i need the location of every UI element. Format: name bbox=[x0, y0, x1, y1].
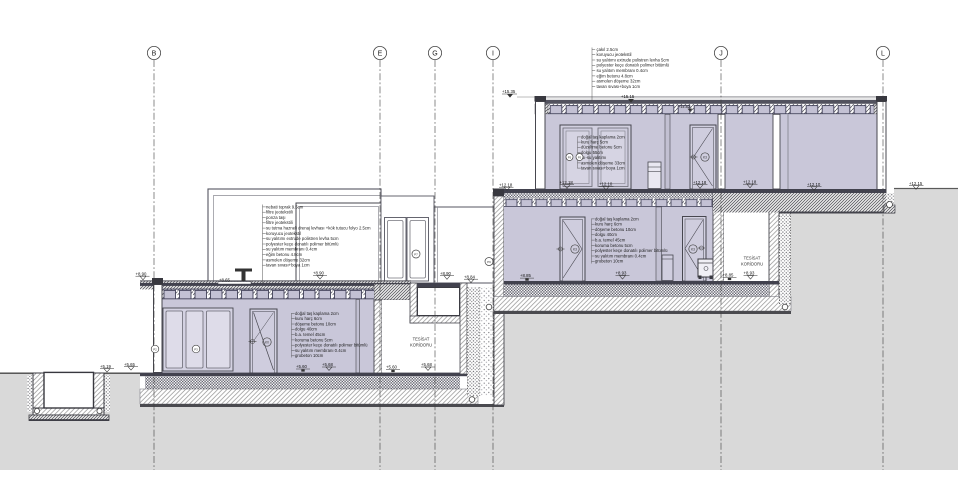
svg-text:polyester keçe donatılı polime: polyester keçe donatılı polimer bitümlü bbox=[597, 63, 670, 68]
svg-text:P5: P5 bbox=[578, 155, 582, 159]
svg-text:+12.18: +12.18 bbox=[499, 182, 513, 187]
svg-text:+5.60: +5.60 bbox=[386, 365, 397, 370]
svg-text:eğim betonu 4.8cm: eğim betonu 4.8cm bbox=[597, 73, 634, 78]
svg-text:döşeme betonu 10cm: döşeme betonu 10cm bbox=[295, 321, 336, 326]
svg-text:grobeton 10cm: grobeton 10cm bbox=[595, 259, 624, 264]
svg-text:P5: P5 bbox=[568, 155, 572, 159]
svg-text:polyester keçe donatılı polime: polyester keçe donatılı polimer bitümlü bbox=[266, 241, 339, 246]
svg-text:filtre jeotekstili: filtre jeotekstili bbox=[266, 220, 293, 225]
svg-text:+8.90: +8.90 bbox=[313, 271, 324, 276]
svg-text:döşeme betonu 10cm: döşeme betonu 10cm bbox=[595, 227, 636, 232]
svg-text:P3: P3 bbox=[194, 347, 198, 351]
svg-text:+15.15: +15.15 bbox=[621, 94, 635, 99]
svg-text:K3: K3 bbox=[573, 248, 577, 252]
svg-text:asmolen döşeme 32cm: asmolen döşeme 32cm bbox=[266, 257, 310, 262]
svg-text:çakıl 2.5cm: çakıl 2.5cm bbox=[597, 47, 619, 52]
svg-text:su yalıtım membranı 0.4cm: su yalıtım membranı 0.4cm bbox=[295, 348, 347, 353]
svg-text:polyester keçe donatılı polime: polyester keçe donatılı polimer bitümlü bbox=[595, 248, 668, 253]
svg-text:+12.10: +12.10 bbox=[807, 182, 821, 187]
svg-text:polyester keçe donatılı polime: polyester keçe donatılı polimer bitümlü bbox=[295, 343, 368, 348]
svg-text:B: B bbox=[152, 51, 157, 58]
svg-text:grobeton 10cm: grobeton 10cm bbox=[295, 353, 324, 358]
svg-text:K3: K3 bbox=[703, 156, 707, 160]
svg-text:P2: P2 bbox=[153, 347, 157, 351]
svg-text:+12.18: +12.18 bbox=[560, 180, 574, 185]
svg-text:b.a. temel 45cm: b.a. temel 45cm bbox=[295, 332, 326, 337]
svg-text:KORİDORU: KORİDORU bbox=[741, 262, 763, 267]
svg-text:K3: K3 bbox=[691, 248, 695, 252]
svg-text:doğal taş kaplama 2cm: doğal taş kaplama 2cm bbox=[295, 311, 339, 316]
svg-text:+12.18: +12.18 bbox=[743, 179, 757, 184]
svg-text:+8.93: +8.93 bbox=[616, 271, 627, 276]
svg-text:dolgu 40cm: dolgu 40cm bbox=[595, 232, 617, 237]
svg-text:+8.90: +8.90 bbox=[440, 271, 451, 276]
svg-text:+8.93: +8.93 bbox=[744, 271, 755, 276]
svg-text:+12.10: +12.10 bbox=[599, 181, 613, 186]
svg-text:+15.35: +15.35 bbox=[502, 89, 516, 94]
svg-text:+5.19: +5.19 bbox=[100, 364, 111, 369]
svg-text:+8.84: +8.84 bbox=[464, 274, 475, 279]
svg-text:ponza taşı: ponza taşı bbox=[266, 215, 286, 220]
svg-text:K0: K0 bbox=[265, 341, 269, 345]
svg-text:nebati toprak 9.5cm: nebati toprak 9.5cm bbox=[266, 204, 304, 209]
svg-text:dolgu 40cm: dolgu 40cm bbox=[295, 327, 317, 332]
svg-text:su tutma hazneli drenaj levhas: su tutma hazneli drenaj levhası +kök tut… bbox=[266, 226, 371, 231]
svg-text:kuru harç 6cm: kuru harç 6cm bbox=[295, 316, 322, 321]
svg-text:asmolen döşeme 32cm: asmolen döşeme 32cm bbox=[597, 79, 641, 84]
svg-text:+8.90: +8.90 bbox=[136, 271, 147, 276]
svg-text:+8.65: +8.65 bbox=[219, 278, 230, 283]
svg-text:su yalıtım membranı 0.4cm: su yalıtım membranı 0.4cm bbox=[595, 253, 647, 258]
svg-text:+5.68: +5.68 bbox=[421, 362, 432, 367]
svg-text:+5.65: +5.65 bbox=[124, 362, 135, 367]
svg-text:I: I bbox=[492, 51, 494, 58]
svg-text:eğim betonu 4.8cm: eğim betonu 4.8cm bbox=[266, 252, 303, 257]
svg-text:G: G bbox=[432, 51, 437, 58]
svg-text:P7: P7 bbox=[414, 252, 418, 256]
svg-text:su yalıtımı extrude polistren: su yalıtımı extrude polistren levha 5cm bbox=[597, 57, 670, 62]
svg-text:koruma betonu 5cm: koruma betonu 5cm bbox=[295, 337, 333, 342]
svg-text:koruma betonu 5cm: koruma betonu 5cm bbox=[595, 243, 633, 248]
svg-text:doğal taş kaplama 2cm: doğal taş kaplama 2cm bbox=[595, 216, 639, 221]
svg-text:tavan sıvası+boya 1cm: tavan sıvası+boya 1cm bbox=[266, 263, 310, 268]
svg-text:filtre jeotekstili: filtre jeotekstili bbox=[266, 210, 293, 215]
svg-text:koruyucu jeotekstil: koruyucu jeotekstil bbox=[266, 231, 301, 236]
svg-text:+5.60: +5.60 bbox=[296, 364, 307, 369]
svg-text:+8.85: +8.85 bbox=[723, 273, 734, 278]
svg-text:su yalıtım membranı 0.4cm: su yalıtım membranı 0.4cm bbox=[266, 247, 318, 252]
svg-text:tavan sıvası+boya 1cm: tavan sıvası+boya 1cm bbox=[581, 166, 625, 171]
svg-text:+12.15: +12.15 bbox=[909, 181, 923, 186]
svg-text:koruyucu jeotekstil: koruyucu jeotekstil bbox=[597, 52, 632, 57]
svg-text:P9: P9 bbox=[487, 260, 491, 264]
svg-text:b.a. temel 45cm: b.a. temel 45cm bbox=[595, 238, 626, 243]
svg-text:L: L bbox=[881, 51, 885, 58]
svg-text:su yalıtımı extrude polistren: su yalıtımı extrude polistren levha 5cm bbox=[266, 236, 339, 241]
svg-text:tavan sıvası+boya 1cm: tavan sıvası+boya 1cm bbox=[597, 84, 641, 89]
svg-text:TESİSAT: TESİSAT bbox=[413, 337, 430, 342]
svg-text:+12.18: +12.18 bbox=[693, 180, 707, 185]
svg-text:KORİDORU: KORİDORU bbox=[410, 343, 432, 348]
svg-text:su yalıtım membranı 0.4cm: su yalıtım membranı 0.4cm bbox=[597, 68, 649, 73]
svg-text:+14.82: +14.82 bbox=[678, 104, 690, 109]
svg-text:+8.85: +8.85 bbox=[520, 273, 531, 278]
svg-text:E: E bbox=[378, 51, 383, 58]
svg-text:J: J bbox=[719, 51, 723, 58]
svg-text:+5.68: +5.68 bbox=[322, 362, 333, 367]
svg-text:TESİSAT: TESİSAT bbox=[744, 256, 761, 261]
svg-text:kuru harç 6cm: kuru harç 6cm bbox=[595, 222, 622, 227]
